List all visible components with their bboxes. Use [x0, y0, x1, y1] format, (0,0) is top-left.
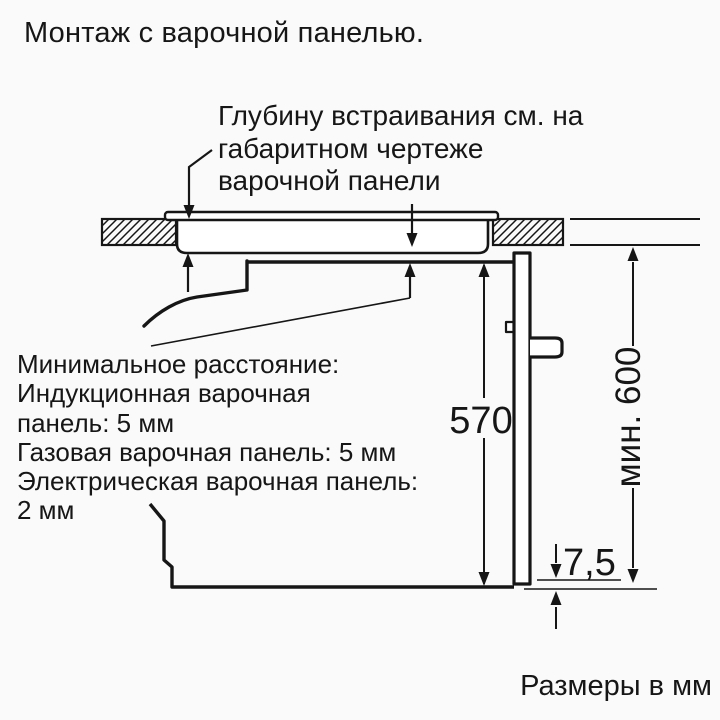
arrowhead-down-icon: [551, 564, 562, 578]
embedding-depth-callout: Глубину встраивания см. на габаритном че…: [218, 100, 583, 198]
leader-line: [151, 298, 410, 346]
leader-to-hob-top: [189, 150, 212, 206]
arrowhead-up-icon: [405, 263, 416, 277]
page-title: Монтаж с варочной панелью.: [24, 17, 424, 50]
countertop-right-hatched: [493, 219, 563, 245]
callout-line: Индукционная варочная: [17, 379, 418, 408]
min-distance-callout: Минимальное расстояние: Индукционная вар…: [17, 350, 418, 526]
callout-line: панель: 5 мм: [17, 409, 418, 438]
arrowhead-down-icon: [628, 569, 639, 583]
hob: [165, 212, 498, 253]
countertop-left-hatched: [102, 219, 176, 245]
callout-line: Минимальное расстояние:: [17, 350, 418, 379]
arrowhead-up-icon: [551, 591, 562, 605]
hob-body: [177, 219, 488, 253]
door-handle: [530, 338, 562, 357]
oven-top-break-line: [144, 261, 247, 326]
arrowhead-down-icon: [479, 572, 490, 586]
countertop-right-lines: [570, 219, 700, 245]
dimension-label-570: 570: [441, 400, 521, 443]
installation-diagram-page: Монтаж с варочной панелью. Глубину встра…: [0, 0, 720, 720]
dimension-label-7-5: 7,5: [563, 542, 616, 585]
callout-line: варочной панели: [218, 165, 583, 198]
dimension-label-min-600: мин. 600: [609, 327, 649, 507]
callout-line: габаритном чертеже: [218, 133, 583, 166]
hob-top-plate: [165, 212, 498, 220]
arrowhead-up-icon: [628, 247, 639, 261]
callout-line: Газовая варочная панель: 5 мм: [17, 438, 418, 467]
callout-line: 2 мм: [17, 496, 418, 525]
callout-line: Электрическая варочная панель:: [17, 467, 418, 496]
arrowhead-up-icon: [479, 263, 490, 277]
callout-line: Глубину встраивания см. на: [218, 100, 583, 133]
units-note: Размеры в мм: [412, 670, 712, 703]
arrowhead-up-icon: [183, 253, 194, 267]
